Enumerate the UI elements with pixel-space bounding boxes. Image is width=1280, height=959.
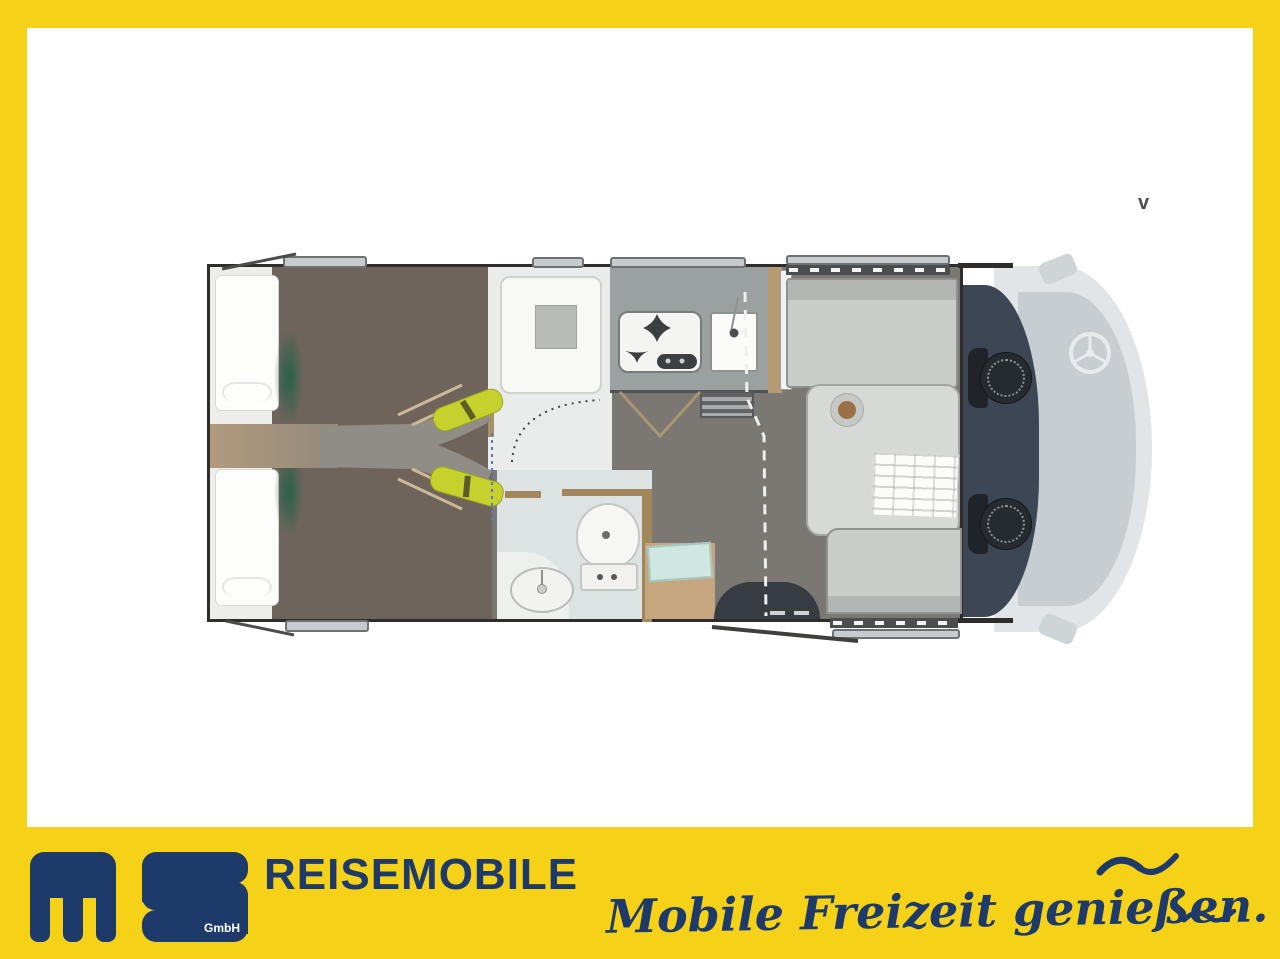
floorplan-image xyxy=(0,0,1280,827)
open-flap-top-left xyxy=(222,254,296,269)
screenshot-root: v xyxy=(0,0,1280,959)
bird-small-right-wing-icon xyxy=(1210,911,1234,920)
bird-small-left-wing-icon xyxy=(1184,913,1210,920)
bird-large-left-wing-icon xyxy=(1100,860,1140,872)
window-flaps-overlay xyxy=(0,0,1280,827)
bird-large-right-wing-icon xyxy=(1140,856,1176,872)
frame-top xyxy=(0,0,1280,28)
frame-left xyxy=(0,0,27,959)
logo-m-leg3 xyxy=(96,868,116,942)
ms-logo: GmbH xyxy=(30,852,252,942)
logo-m-leg1 xyxy=(30,868,50,942)
frame-right xyxy=(1253,0,1280,959)
open-flap-bottom-left xyxy=(226,621,294,635)
brand-text: REISEMOBILE xyxy=(264,850,578,900)
watermark-text: v xyxy=(1138,192,1149,215)
birds-icon xyxy=(1096,846,1246,946)
logo-m-leg2 xyxy=(63,868,83,942)
open-door-stroke-bottom xyxy=(712,627,858,641)
dealer-banner: GmbH REISEMOBILE Mobile Freizeit genieße… xyxy=(0,827,1280,959)
logo-gmbh-text: GmbH xyxy=(204,921,240,935)
